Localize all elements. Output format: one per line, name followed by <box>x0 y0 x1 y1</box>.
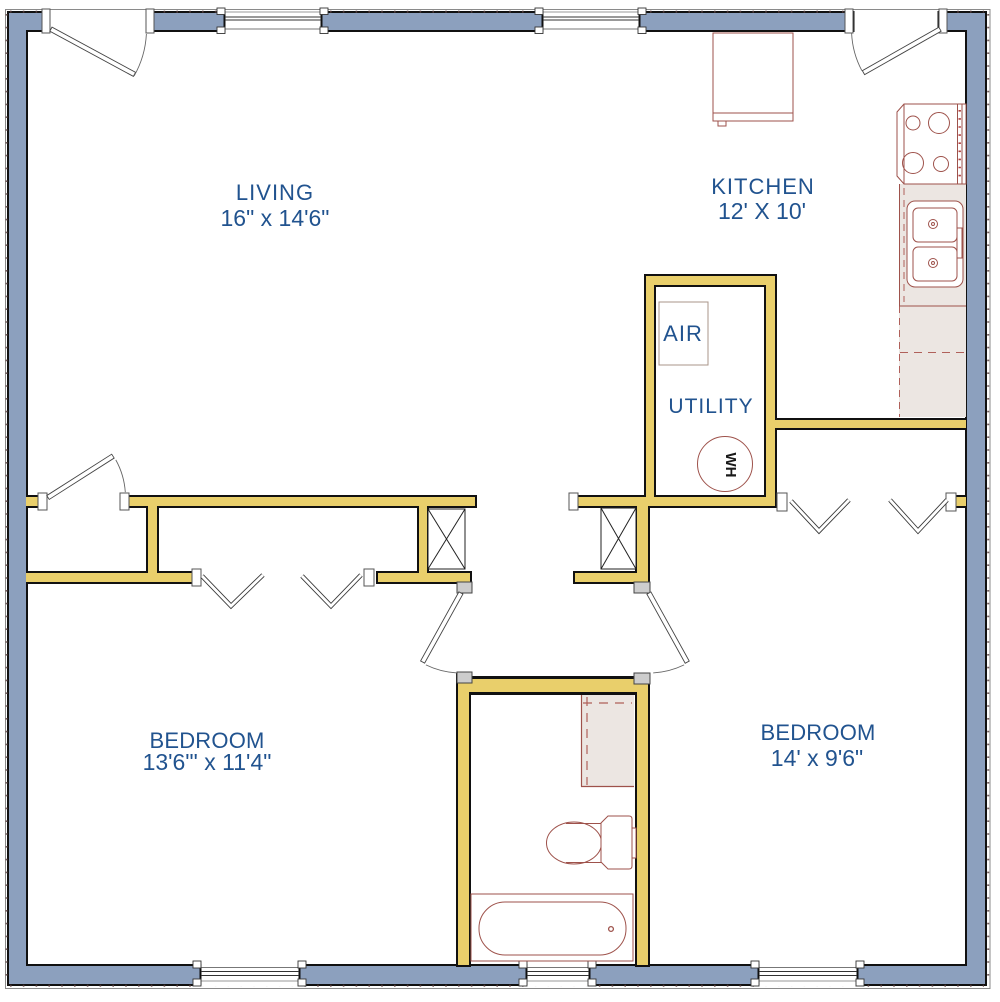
svg-text:LIVING: LIVING <box>236 180 314 205</box>
svg-text:UTILITY: UTILITY <box>668 395 753 418</box>
svg-text:KITCHEN: KITCHEN <box>711 174 815 199</box>
svg-text:14' x 9'6": 14' x 9'6" <box>771 745 863 771</box>
svg-text:AIR: AIR <box>663 321 703 346</box>
svg-text:12' X 10': 12' X 10' <box>718 198 806 224</box>
svg-text:16" x 14'6": 16" x 14'6" <box>221 205 330 231</box>
svg-text:BEDROOM: BEDROOM <box>760 720 875 745</box>
svg-text:13'6"' x 11'4": 13'6"' x 11'4" <box>143 749 272 775</box>
svg-text:WH: WH <box>722 453 739 478</box>
